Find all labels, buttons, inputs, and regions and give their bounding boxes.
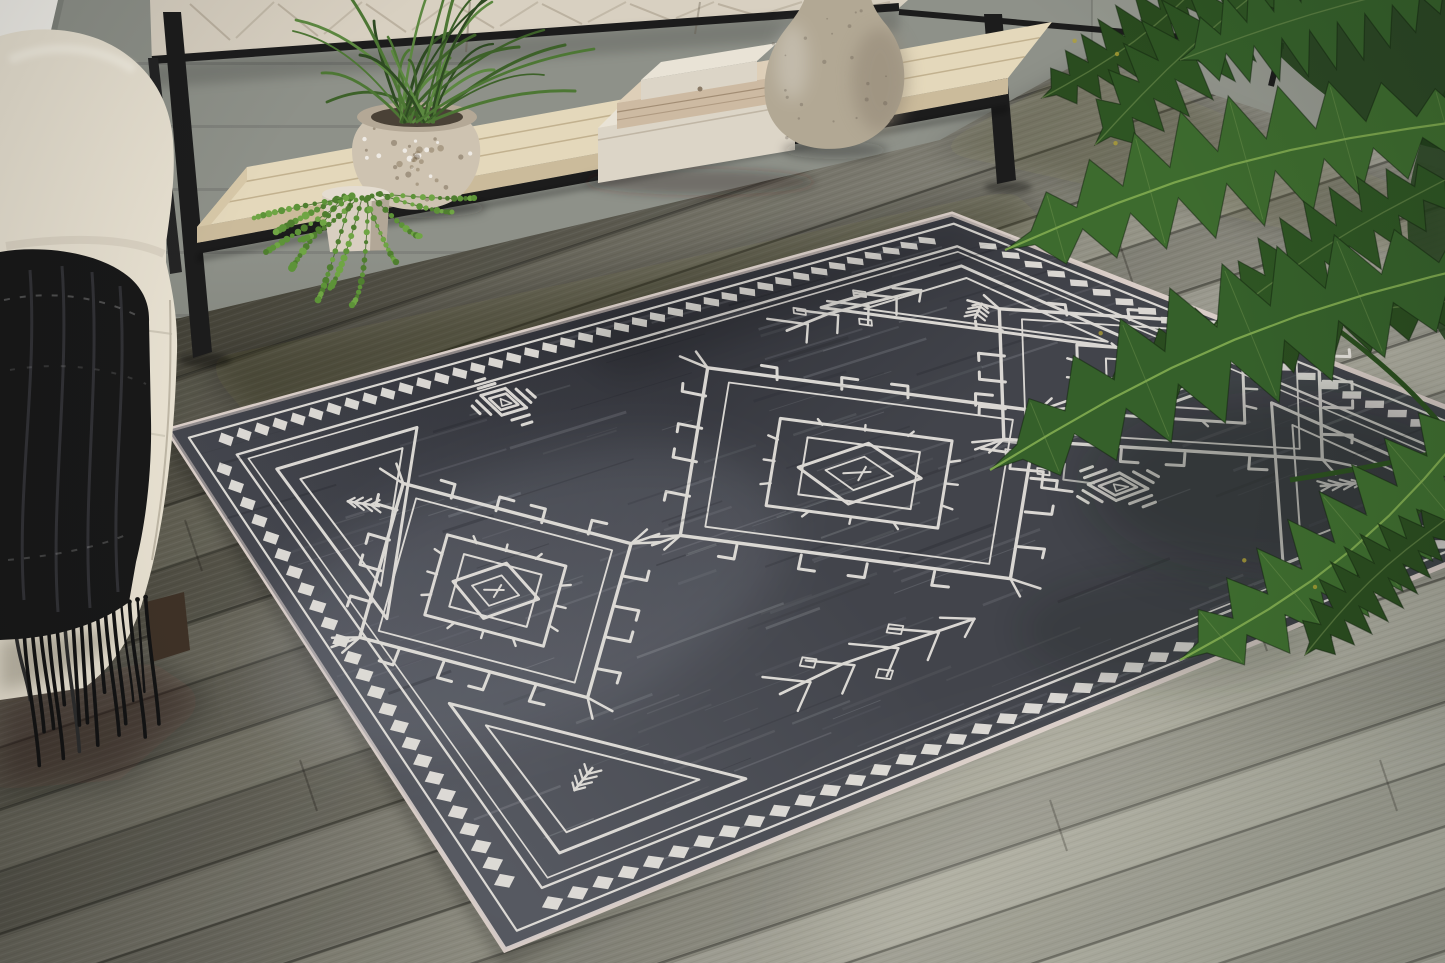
scene-photo <box>0 0 1445 963</box>
lighting-overlay <box>0 0 1445 963</box>
living-room-photo <box>0 0 1445 963</box>
